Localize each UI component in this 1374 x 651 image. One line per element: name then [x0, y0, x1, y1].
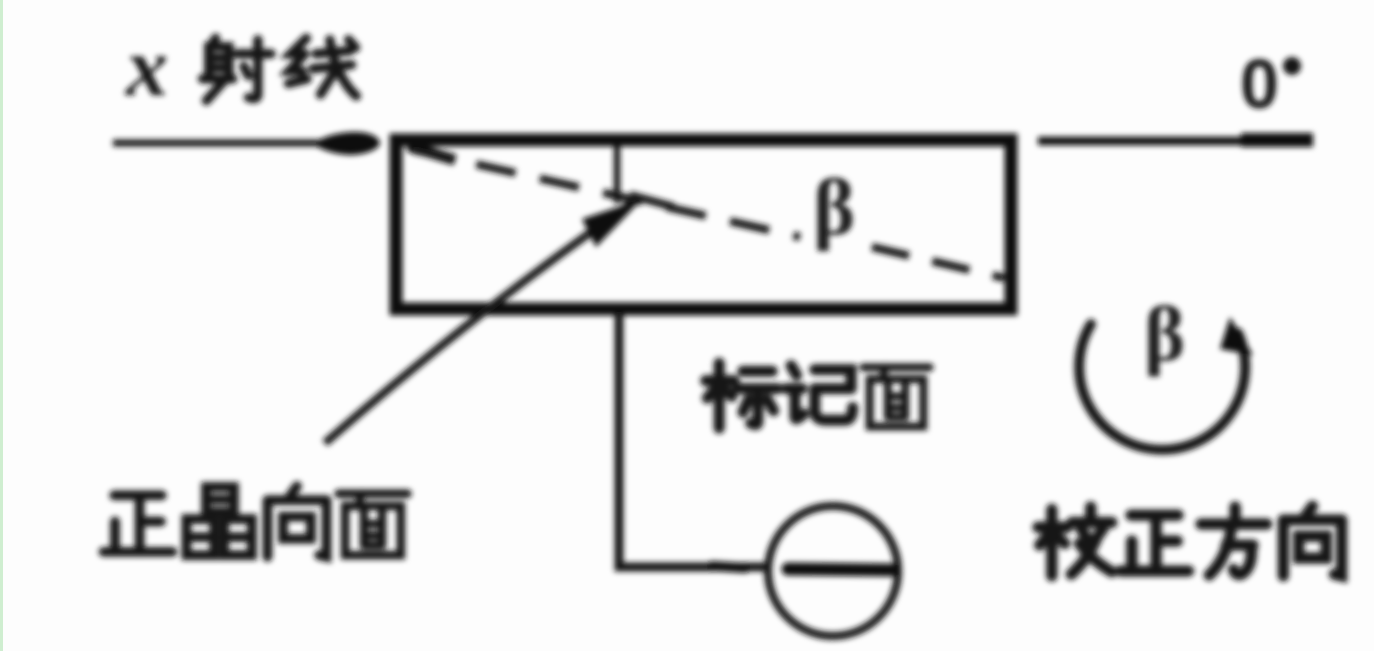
- svg-text:x: x: [124, 21, 168, 114]
- svg-text:β: β: [1144, 290, 1185, 377]
- svg-text:0: 0: [1240, 45, 1279, 123]
- svg-text:β: β: [813, 164, 855, 252]
